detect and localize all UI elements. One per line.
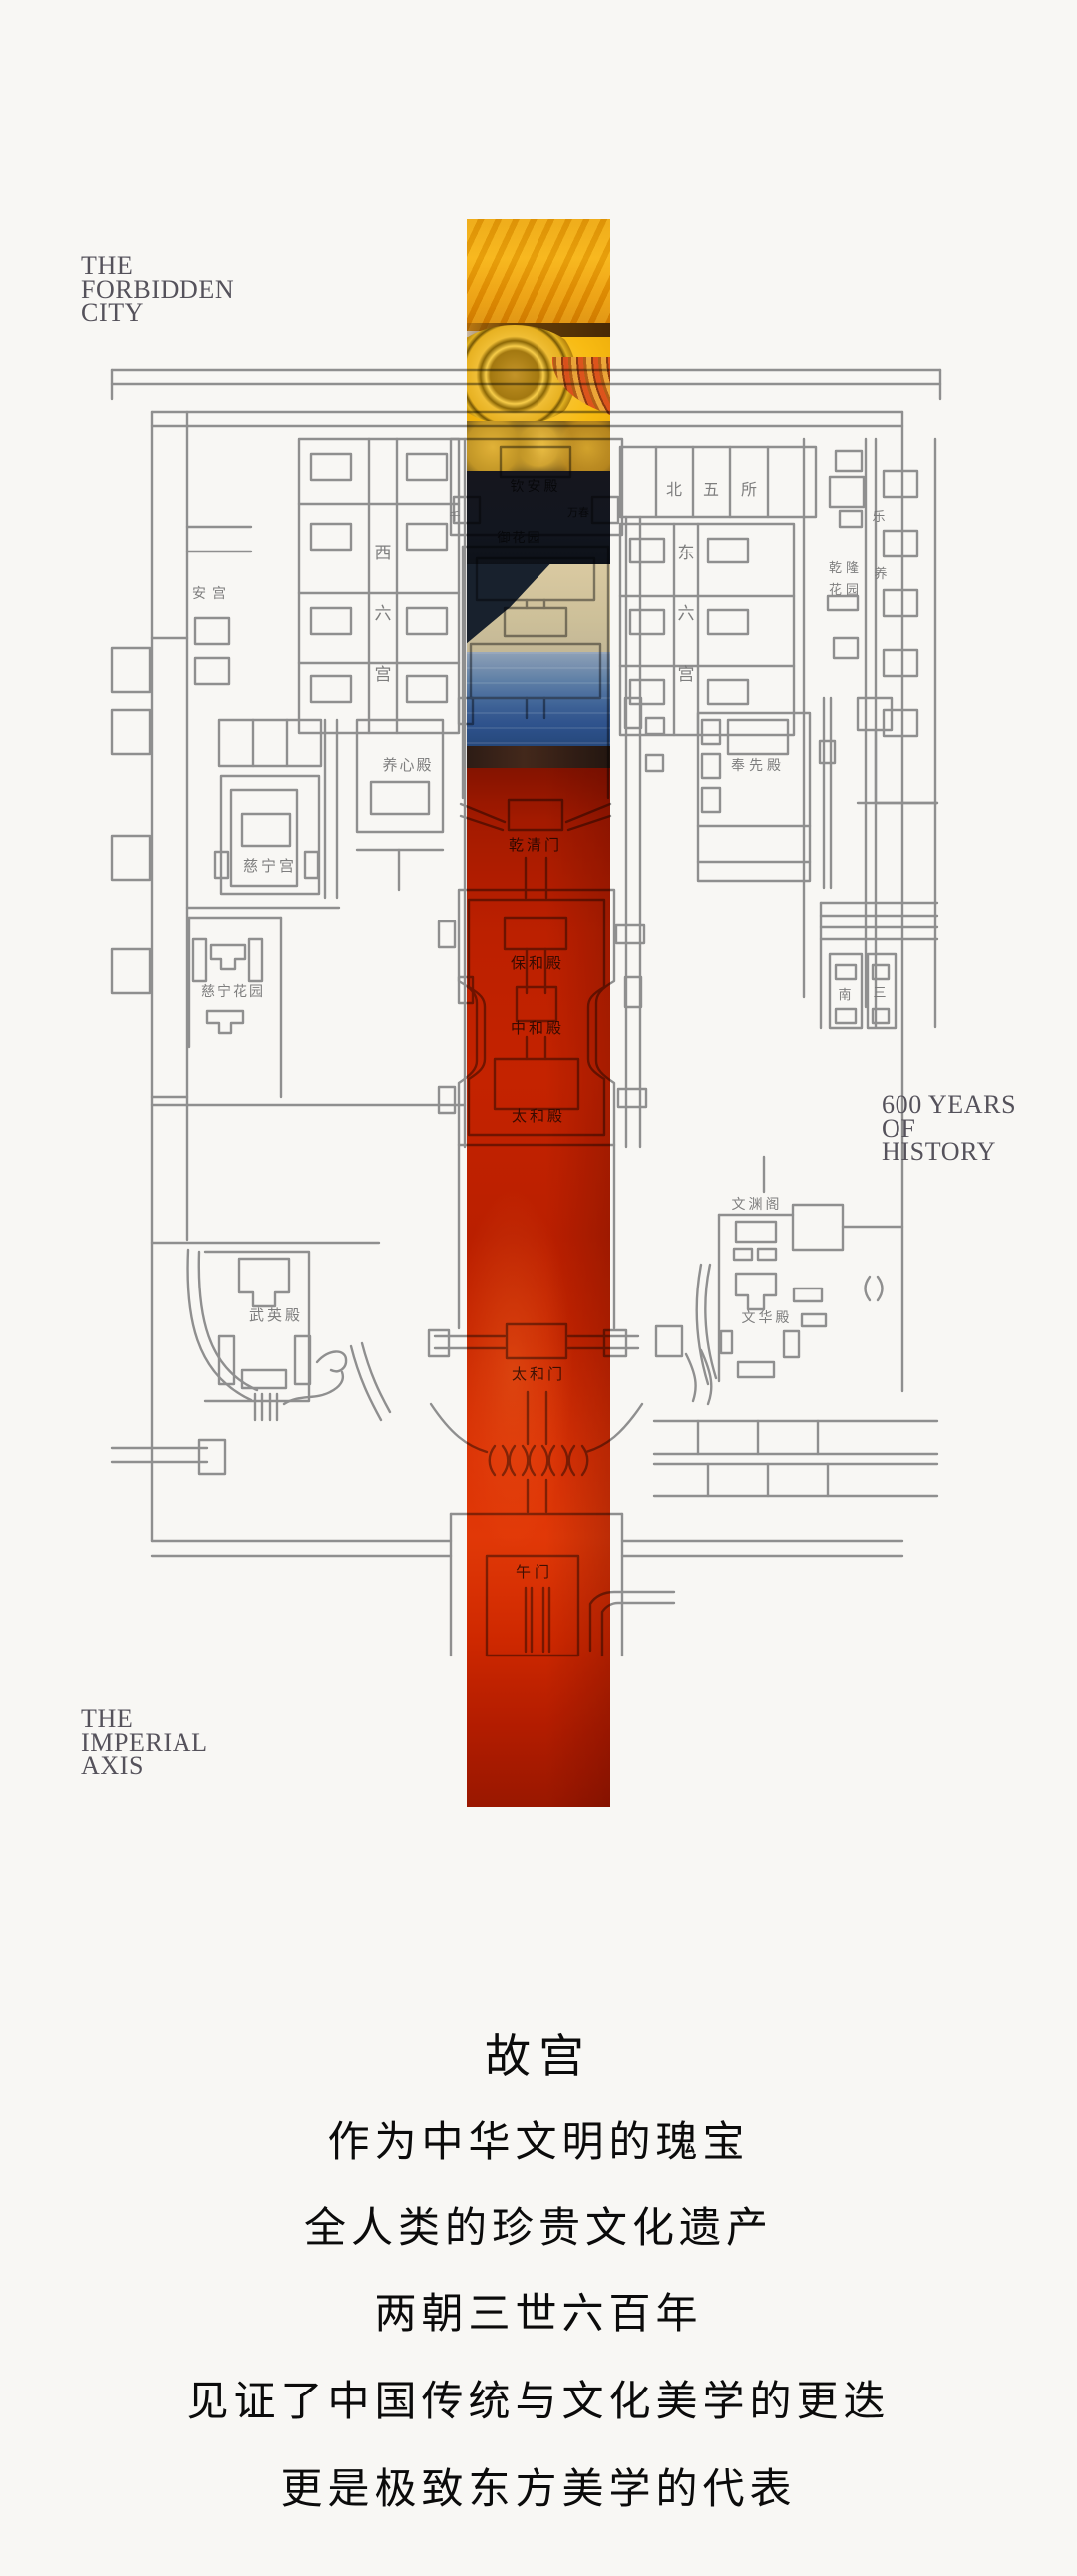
map-label: 所 (741, 481, 757, 499)
map-label: 奉先殿 (731, 757, 785, 773)
map-label: 三 (873, 985, 886, 1000)
golden-dragon-relief-band (467, 421, 610, 473)
map-label: 慈宁宫 (243, 858, 297, 875)
map-label: 乐 (872, 509, 885, 524)
map-label: 北 (666, 481, 682, 499)
corner-line: CITY (81, 301, 234, 325)
caption-line: 两朝三世六百年 (0, 2280, 1077, 2341)
map-label: 文华殿 (742, 1309, 793, 1325)
map-label: 南 (838, 987, 851, 1002)
brown-beam-band (467, 746, 610, 770)
glazed-roof-tiles-band (467, 219, 610, 331)
map-label: 养 (874, 566, 887, 581)
caption-title: 故宫 (0, 2021, 1077, 2086)
blue-glaze-band (467, 652, 610, 748)
caption-line: 全人类的珍贵文化遗产 (0, 2194, 1077, 2255)
corner-line: THE (81, 254, 234, 278)
map-label: 安宫 (192, 585, 232, 601)
map-label: 五 (703, 482, 719, 499)
map-label: 慈宁花园 (201, 983, 265, 999)
map-label: 乾隆 (829, 560, 863, 575)
imperial-axis-photo-strip (467, 219, 610, 1807)
title-the-imperial-axis: THE IMPERIAL AXIS (81, 1707, 208, 1778)
caption-line: 见证了中国传统与文化美学的更迭 (0, 2368, 1077, 2428)
caption-line: 作为中华文明的瑰宝 (0, 2108, 1077, 2169)
forbidden-city-poster: 北五所东六宫西六宫乾隆花园乐养安宫养心殿奉先殿慈宁宫慈宁花园南三武英殿文渊阁文华… (0, 0, 1077, 2576)
map-label: 千 (450, 510, 461, 523)
caption-line: 更是极致东方美学的代表 (0, 2455, 1077, 2516)
map-label: 武英殿 (249, 1306, 303, 1324)
map-label: 东六宫 (678, 544, 695, 684)
map-label: 文渊阁 (732, 1196, 783, 1212)
map-label: 花园 (829, 582, 863, 597)
map-label: 养心殿 (382, 757, 433, 774)
tan-glaze-transition (467, 564, 610, 654)
corner-line: AXIS (81, 1754, 208, 1778)
corner-line: 600 YEARS (882, 1093, 1016, 1117)
corner-line: THE (81, 1707, 208, 1731)
title-600-years-of-history: 600 YEARS OF HISTORY (882, 1093, 1016, 1164)
title-the-forbidden-city: THE FORBIDDEN CITY (81, 254, 234, 325)
shadow-band (467, 471, 610, 566)
corner-line: HISTORY (882, 1140, 1016, 1164)
vermilion-wall-band (467, 768, 610, 1807)
